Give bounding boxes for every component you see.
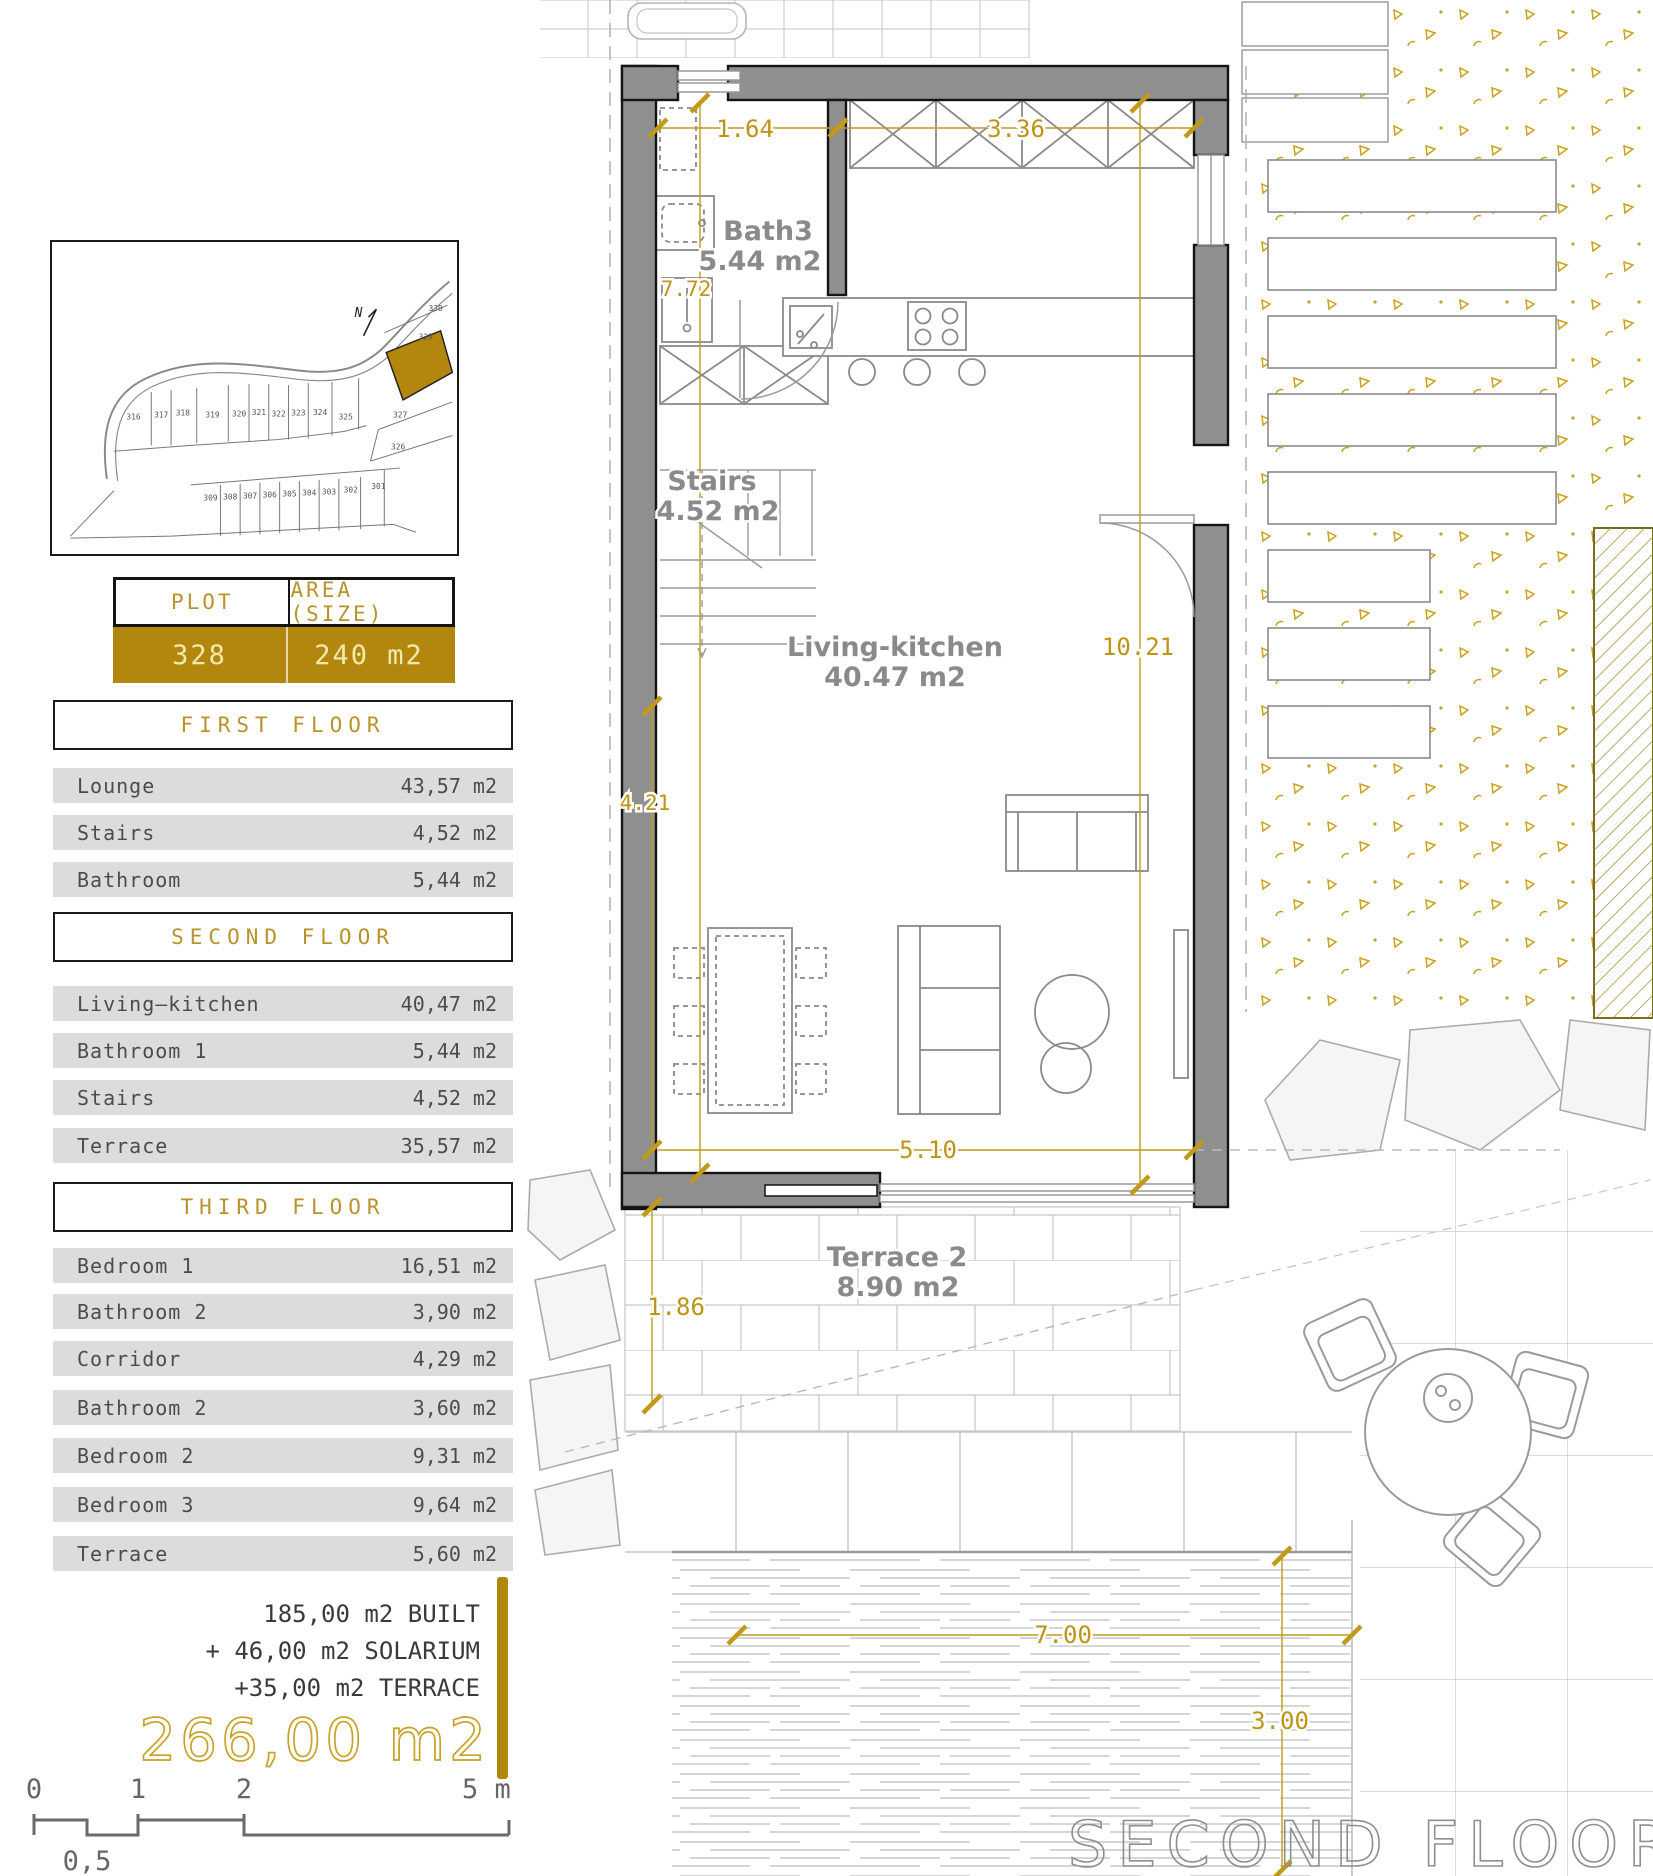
- top-walkway: [540, 0, 1030, 58]
- dim-top-right: 3.36: [987, 115, 1045, 143]
- first-floor-header: FIRST FLOOR: [53, 700, 513, 750]
- room-label-terrace2: Terrace 2: [827, 1242, 968, 1273]
- room-label-stairs: Stairs: [667, 466, 756, 497]
- bottom-wall-slot: [765, 1185, 877, 1196]
- grand-total: 266,00 m2: [90, 1708, 500, 1774]
- svg-text:N: N: [354, 306, 363, 321]
- garden-right: [1242, 0, 1653, 1018]
- dim-top-left: 1.64: [716, 115, 774, 143]
- svg-text:320: 320: [232, 410, 246, 419]
- room-label-living: Living-kitchen: [787, 632, 1003, 663]
- plot-header: PLOT: [116, 580, 290, 624]
- table-row: Living–kitchen40,47 m2: [53, 986, 513, 1021]
- plan-title: SECOND FLOOR: [1068, 1808, 1653, 1876]
- table-row: Bathroom 23,90 m2: [53, 1294, 513, 1329]
- site-plan-inset: 316 317 318 319 320 321 322 323 324 325 …: [50, 240, 459, 556]
- svg-text:322: 322: [272, 410, 286, 419]
- table-row: Corridor4,29 m2: [53, 1341, 513, 1376]
- table-row: Bathroom 23,60 m2: [53, 1390, 513, 1425]
- gold-accent-bar: [497, 1577, 508, 1779]
- scale-end-label: 5 m: [462, 1774, 511, 1805]
- svg-text:307: 307: [243, 492, 257, 501]
- table-row: Terrace5,60 m2: [53, 1536, 513, 1571]
- table-row: Bathroom 15,44 m2: [53, 1033, 513, 1068]
- dim-deck-width: 7.00: [1034, 1621, 1092, 1649]
- table-row: Bedroom 39,64 m2: [53, 1487, 513, 1522]
- dim-interior-height: 10.21: [1102, 633, 1174, 661]
- table-row: Stairs4,52 m2: [53, 815, 513, 850]
- dim-bottom-width: 5.10: [899, 1136, 957, 1164]
- svg-text:1: 1: [130, 1774, 146, 1805]
- svg-text:316: 316: [126, 413, 140, 422]
- svg-text:319: 319: [205, 411, 219, 420]
- area-value: 240 m2: [288, 627, 450, 683]
- scale-half-label: 0,5: [63, 1846, 112, 1876]
- svg-text:318: 318: [176, 409, 190, 418]
- total-built: 185,00 m2 BUILT: [40, 1596, 480, 1633]
- svg-text:325: 325: [339, 413, 353, 422]
- svg-text:317: 317: [154, 411, 168, 420]
- table-row: Bathroom5,44 m2: [53, 862, 513, 897]
- room-label-bath3: Bath3: [723, 216, 813, 247]
- area-header: AREA (SIZE): [290, 580, 452, 624]
- svg-text:323: 323: [291, 409, 305, 418]
- svg-text:301: 301: [371, 482, 385, 491]
- room-area-terrace2: 8.90 m2: [837, 1272, 960, 1303]
- dim-wall-left: 4.21: [620, 791, 671, 815]
- svg-text:330: 330: [429, 304, 443, 313]
- svg-text:304: 304: [302, 489, 316, 498]
- total-solarium: + 46,00 m2 SOLARIUM: [40, 1633, 480, 1670]
- svg-text:326: 326: [391, 442, 405, 451]
- svg-text:309: 309: [203, 494, 217, 503]
- third-floor-header: THIRD FLOOR: [53, 1182, 513, 1232]
- svg-text:302: 302: [344, 486, 358, 495]
- svg-text:2: 2: [236, 1774, 252, 1805]
- plot-area-table: PLOT AREA (SIZE) 328 240 m2: [113, 577, 455, 683]
- room-area-living: 40.47 m2: [824, 662, 966, 693]
- floorplan-sheet: 1.64 3.36 7.72 10.21 4.21 5.10 1.86 7.00…: [0, 0, 1653, 1876]
- svg-text:327: 327: [393, 411, 407, 420]
- svg-text:321: 321: [252, 408, 266, 417]
- area-totals: 185,00 m2 BUILT + 46,00 m2 SOLARIUM +35,…: [40, 1596, 480, 1707]
- site-plan-svg: 316 317 318 319 320 321 322 323 324 325 …: [52, 242, 453, 550]
- svg-text:329: 329: [419, 333, 433, 342]
- table-row: Terrace35,57 m2: [53, 1128, 513, 1163]
- table-row: Lounge43,57 m2: [53, 768, 513, 803]
- room-area-stairs: 4.52 m2: [657, 496, 780, 527]
- dim-deck-depth: 3.00: [1251, 1707, 1309, 1735]
- svg-text:0: 0: [26, 1774, 42, 1805]
- scale-bar: 0 1 2 5 m 0,5: [12, 1772, 532, 1876]
- hedge-hatch-strip: [1594, 528, 1653, 1018]
- table-row: Stairs4,52 m2: [53, 1080, 513, 1115]
- second-floor-header: SECOND FLOOR: [53, 912, 513, 962]
- dim-terrace-depth: 1.86: [647, 1293, 705, 1321]
- table-row: Bedroom 29,31 m2: [53, 1438, 513, 1473]
- room-area-bath3: 5.44 m2: [699, 246, 822, 277]
- table-row: Bedroom 116,51 m2: [53, 1248, 513, 1283]
- svg-text:324: 324: [313, 408, 327, 417]
- svg-text:303: 303: [322, 488, 336, 497]
- dim-bath-height: 7.72: [661, 277, 712, 301]
- svg-text:305: 305: [282, 490, 296, 499]
- plot-value: 328: [113, 627, 288, 683]
- total-terrace: +35,00 m2 TERRACE: [40, 1670, 480, 1707]
- grand-total-value: 266,00 m2: [139, 1708, 490, 1774]
- svg-text:308: 308: [223, 493, 237, 502]
- north-arrow: N: [354, 306, 377, 336]
- svg-text:306: 306: [263, 491, 277, 500]
